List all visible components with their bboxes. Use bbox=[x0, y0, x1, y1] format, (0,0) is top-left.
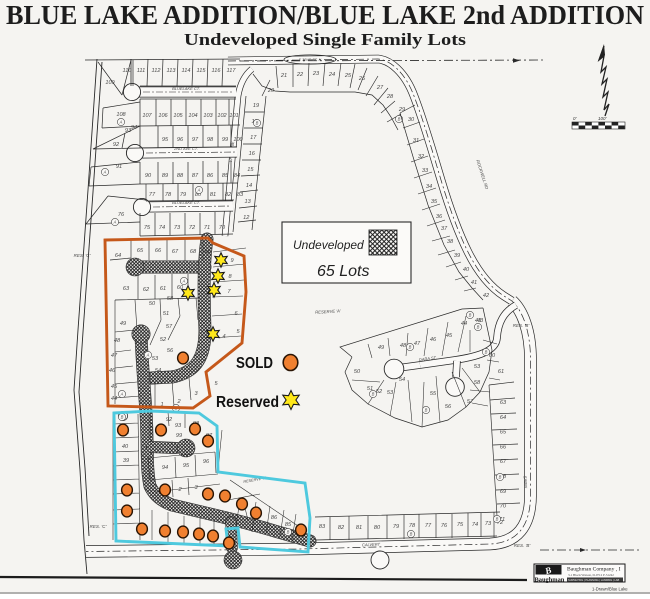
svg-text:27: 27 bbox=[376, 85, 384, 91]
svg-text:70: 70 bbox=[219, 225, 226, 231]
svg-text:70: 70 bbox=[500, 504, 507, 510]
svg-text:RES. 'B': RES. 'B' bbox=[513, 323, 530, 328]
svg-text:A: A bbox=[182, 279, 186, 284]
svg-text:RES. 'B': RES. 'B' bbox=[514, 543, 531, 548]
svg-text:60: 60 bbox=[489, 353, 496, 359]
svg-text:75: 75 bbox=[457, 522, 464, 528]
svg-text:95: 95 bbox=[183, 463, 190, 469]
svg-text:47: 47 bbox=[111, 353, 118, 359]
svg-text:96: 96 bbox=[177, 137, 184, 143]
svg-text:102: 102 bbox=[217, 113, 227, 119]
svg-text:83: 83 bbox=[237, 192, 244, 198]
svg-text:96: 96 bbox=[203, 459, 210, 465]
svg-text:98: 98 bbox=[207, 137, 214, 143]
svg-text:B: B bbox=[256, 121, 259, 126]
svg-text:77: 77 bbox=[149, 192, 156, 198]
svg-text:A: A bbox=[113, 220, 117, 225]
svg-text:45: 45 bbox=[111, 384, 118, 390]
svg-text:21: 21 bbox=[280, 73, 287, 79]
svg-text:67: 67 bbox=[500, 459, 507, 465]
svg-text:0': 0' bbox=[573, 116, 577, 121]
svg-text:103: 103 bbox=[203, 113, 213, 119]
svg-text:A: A bbox=[120, 392, 124, 397]
svg-text:30: 30 bbox=[408, 117, 415, 123]
svg-text:91: 91 bbox=[116, 164, 122, 170]
svg-text:99: 99 bbox=[222, 137, 228, 143]
svg-text:Baughman: Baughman bbox=[535, 577, 565, 584]
svg-text:B: B bbox=[477, 325, 480, 330]
svg-text:105: 105 bbox=[173, 113, 183, 119]
svg-text:SABIN: SABIN bbox=[523, 476, 529, 490]
svg-text:22: 22 bbox=[296, 72, 304, 78]
svg-text:BLUE LAKE ADDITION/BLUE LAKE 2: BLUE LAKE ADDITION/BLUE LAKE 2nd ADDITIO… bbox=[6, 0, 644, 30]
svg-text:RES. 'C': RES. 'C' bbox=[90, 524, 107, 529]
svg-text:64: 64 bbox=[500, 415, 506, 421]
svg-text:4: 4 bbox=[222, 334, 225, 340]
svg-text:80: 80 bbox=[374, 525, 381, 531]
svg-text:40: 40 bbox=[122, 444, 129, 450]
svg-text:B: B bbox=[469, 313, 472, 318]
svg-text:88: 88 bbox=[177, 173, 184, 179]
svg-text:81: 81 bbox=[356, 525, 362, 531]
svg-text:95: 95 bbox=[162, 137, 169, 143]
svg-text:108: 108 bbox=[116, 112, 126, 118]
svg-text:45: 45 bbox=[446, 333, 453, 339]
svg-text:38: 38 bbox=[447, 239, 454, 245]
svg-text:117: 117 bbox=[227, 68, 237, 74]
svg-text:47: 47 bbox=[414, 341, 421, 347]
svg-text:57: 57 bbox=[467, 399, 474, 405]
svg-text:32: 32 bbox=[418, 154, 425, 160]
svg-text:B: B bbox=[372, 392, 375, 397]
svg-text:49: 49 bbox=[120, 321, 126, 327]
svg-text:Reserved: Reserved bbox=[216, 394, 279, 411]
svg-text:67: 67 bbox=[172, 249, 179, 255]
svg-text:26: 26 bbox=[358, 76, 366, 82]
svg-text:63: 63 bbox=[123, 286, 130, 292]
svg-text:B: B bbox=[409, 345, 412, 350]
svg-text:9: 9 bbox=[230, 258, 233, 264]
svg-text:99: 99 bbox=[176, 433, 182, 439]
svg-text:44: 44 bbox=[461, 321, 467, 327]
svg-text:52: 52 bbox=[160, 337, 167, 343]
svg-text:46: 46 bbox=[430, 337, 437, 343]
svg-text:68: 68 bbox=[190, 249, 197, 255]
svg-text:97: 97 bbox=[192, 137, 199, 143]
svg-text:82: 82 bbox=[338, 525, 345, 531]
svg-text:106: 106 bbox=[158, 113, 168, 119]
svg-text:90: 90 bbox=[145, 173, 152, 179]
svg-text:B: B bbox=[398, 117, 401, 122]
svg-text:94: 94 bbox=[162, 465, 168, 471]
svg-text:1-Drawn/Blue Lake: 1-Drawn/Blue Lake bbox=[592, 587, 628, 592]
svg-text:100': 100' bbox=[598, 116, 607, 121]
svg-text:56: 56 bbox=[445, 404, 452, 410]
svg-text:44: 44 bbox=[111, 396, 117, 402]
svg-text:RES. 'C': RES. 'C' bbox=[74, 253, 91, 258]
svg-text:87: 87 bbox=[192, 173, 199, 179]
svg-text:72: 72 bbox=[189, 225, 196, 231]
svg-text:B: B bbox=[410, 532, 413, 537]
svg-text:B: B bbox=[485, 350, 488, 355]
svg-text:71: 71 bbox=[204, 225, 210, 231]
svg-text:41: 41 bbox=[471, 280, 477, 286]
svg-text:74: 74 bbox=[472, 522, 478, 528]
svg-text:114: 114 bbox=[182, 68, 191, 74]
svg-text:66: 66 bbox=[155, 248, 162, 254]
svg-text:Undeveloped: Undeveloped bbox=[293, 238, 364, 252]
svg-text:66: 66 bbox=[500, 444, 507, 450]
svg-text:53: 53 bbox=[474, 364, 481, 370]
svg-text:20: 20 bbox=[267, 88, 275, 94]
svg-text:78: 78 bbox=[409, 523, 416, 529]
svg-text:82: 82 bbox=[225, 192, 232, 198]
svg-text:23: 23 bbox=[312, 71, 320, 77]
svg-text:46: 46 bbox=[109, 368, 116, 374]
svg-text:15: 15 bbox=[247, 167, 254, 173]
svg-text:35: 35 bbox=[431, 199, 438, 205]
svg-text:A: A bbox=[119, 120, 123, 125]
svg-text:SOLD: SOLD bbox=[236, 355, 273, 372]
svg-text:54: 54 bbox=[399, 377, 405, 383]
svg-text:BLUELAKE CT.: BLUELAKE CT. bbox=[172, 86, 200, 91]
svg-text:B: B bbox=[425, 408, 428, 413]
svg-text:48: 48 bbox=[400, 343, 407, 349]
svg-text:86: 86 bbox=[271, 515, 278, 521]
svg-text:112: 112 bbox=[152, 68, 162, 74]
svg-text:24: 24 bbox=[328, 72, 335, 78]
svg-text:81: 81 bbox=[210, 192, 216, 198]
svg-text:50: 50 bbox=[354, 369, 361, 375]
svg-text:57: 57 bbox=[166, 324, 173, 330]
svg-text:13: 13 bbox=[244, 199, 251, 205]
svg-text:101: 101 bbox=[229, 113, 238, 119]
svg-text:52: 52 bbox=[376, 389, 383, 395]
svg-text:CALVERT: CALVERT bbox=[362, 542, 381, 548]
svg-text:E 32ND ST. N: E 32ND ST. N bbox=[299, 58, 322, 62]
svg-text:B: B bbox=[496, 517, 499, 522]
svg-text:79: 79 bbox=[393, 524, 399, 530]
svg-text:58: 58 bbox=[167, 296, 174, 302]
svg-text:83: 83 bbox=[319, 524, 326, 530]
svg-text:17: 17 bbox=[250, 135, 257, 141]
svg-text:49: 49 bbox=[378, 345, 384, 351]
svg-text:65: 65 bbox=[137, 248, 144, 254]
svg-text:73: 73 bbox=[485, 521, 492, 527]
svg-text:89: 89 bbox=[162, 173, 168, 179]
svg-text:31: 31 bbox=[413, 138, 419, 144]
svg-text:93: 93 bbox=[175, 423, 182, 429]
svg-text:94: 94 bbox=[131, 125, 137, 131]
svg-text:Baughman Company , I: Baughman Company , I bbox=[567, 567, 621, 573]
svg-text:40: 40 bbox=[463, 267, 470, 273]
svg-text:B: B bbox=[287, 530, 290, 535]
svg-text:53: 53 bbox=[387, 390, 394, 396]
svg-text:92: 92 bbox=[113, 142, 120, 148]
svg-text:A: A bbox=[146, 353, 150, 358]
svg-text:A: A bbox=[103, 170, 107, 175]
svg-text:76: 76 bbox=[118, 212, 125, 218]
svg-text:42: 42 bbox=[483, 293, 490, 299]
svg-text:58: 58 bbox=[474, 380, 481, 386]
svg-text:28: 28 bbox=[386, 94, 394, 100]
svg-text:69: 69 bbox=[500, 489, 506, 495]
svg-text:65: 65 bbox=[500, 430, 507, 436]
svg-text:85: 85 bbox=[285, 522, 292, 528]
svg-text:77: 77 bbox=[425, 523, 432, 529]
svg-text:64: 64 bbox=[115, 253, 121, 259]
svg-text:16: 16 bbox=[249, 151, 256, 157]
svg-text:109: 109 bbox=[105, 80, 114, 86]
svg-text:33: 33 bbox=[422, 168, 429, 174]
svg-text:Undeveloped Single Family Lots: Undeveloped Single Family Lots bbox=[184, 30, 466, 49]
svg-text:85: 85 bbox=[222, 173, 229, 179]
svg-text:SURVEYING | PLANNING | LANDING: SURVEYING | PLANNING | LANDING | LAB bbox=[568, 578, 620, 582]
svg-text:92: 92 bbox=[166, 417, 173, 423]
svg-text:19: 19 bbox=[253, 103, 259, 109]
svg-text:79: 79 bbox=[180, 192, 186, 198]
svg-text:75: 75 bbox=[144, 225, 151, 231]
svg-text:111: 111 bbox=[137, 68, 146, 74]
svg-text:25: 25 bbox=[344, 73, 352, 79]
svg-text:43: 43 bbox=[477, 318, 484, 324]
svg-text:12: 12 bbox=[243, 215, 250, 221]
svg-text:115: 115 bbox=[197, 68, 207, 74]
svg-text:61: 61 bbox=[498, 369, 504, 375]
svg-text:61: 61 bbox=[160, 286, 166, 292]
svg-text:116: 116 bbox=[212, 68, 222, 74]
svg-text:B: B bbox=[499, 475, 502, 480]
svg-text:113: 113 bbox=[167, 68, 177, 74]
svg-text:48: 48 bbox=[114, 338, 121, 344]
svg-text:36: 36 bbox=[436, 214, 443, 220]
svg-text:50: 50 bbox=[149, 301, 156, 307]
svg-text:2ND AVE CT.: 2ND AVE CT. bbox=[173, 146, 198, 151]
svg-text:86: 86 bbox=[207, 173, 214, 179]
svg-text:76: 76 bbox=[441, 523, 448, 529]
svg-text:B: B bbox=[121, 415, 124, 420]
svg-text:39: 39 bbox=[454, 253, 460, 259]
svg-text:54: 54 bbox=[155, 368, 161, 374]
svg-text:14: 14 bbox=[246, 183, 252, 189]
svg-text:34: 34 bbox=[426, 184, 432, 190]
svg-text:53: 53 bbox=[152, 356, 159, 362]
svg-text:62: 62 bbox=[143, 287, 150, 293]
svg-text:63: 63 bbox=[500, 400, 507, 406]
svg-text:A: A bbox=[197, 188, 201, 193]
svg-text:84: 84 bbox=[234, 173, 240, 179]
svg-text:74: 74 bbox=[159, 225, 165, 231]
svg-text:51: 51 bbox=[163, 311, 169, 317]
svg-text:56: 56 bbox=[167, 348, 174, 354]
svg-text:78: 78 bbox=[165, 192, 172, 198]
svg-text:104: 104 bbox=[188, 113, 197, 119]
svg-text:39: 39 bbox=[123, 458, 129, 464]
svg-text:69: 69 bbox=[205, 250, 211, 256]
svg-text:73: 73 bbox=[174, 225, 181, 231]
svg-text:37: 37 bbox=[441, 226, 448, 232]
svg-text:65 Lots: 65 Lots bbox=[317, 263, 369, 280]
svg-text:55: 55 bbox=[430, 391, 437, 397]
svg-text:107: 107 bbox=[142, 113, 152, 119]
